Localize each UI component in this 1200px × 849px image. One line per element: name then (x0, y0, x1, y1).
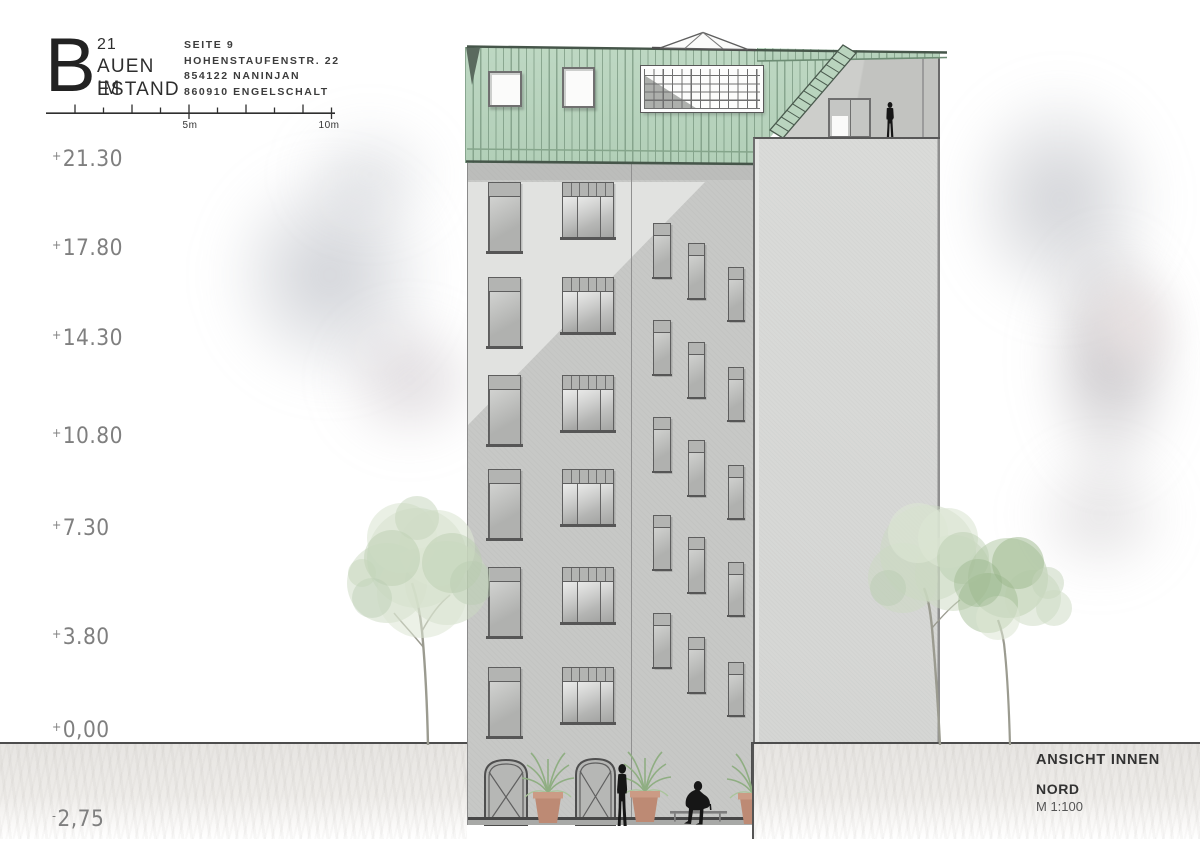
drawing-title: ANSICHT INNEN (1036, 752, 1160, 768)
entrance-door-right (574, 755, 617, 826)
facade-window (488, 182, 521, 252)
stairwell-window (728, 465, 744, 519)
roof-seam-line (467, 149, 757, 152)
tree-canopy (868, 503, 1072, 640)
stairwell-window (728, 562, 744, 616)
title-big-letter: B (45, 30, 96, 102)
roof-pyramid-skylight (652, 33, 756, 51)
tree-group-right (858, 468, 1073, 745)
elevation-label: +0,00 (52, 718, 110, 743)
stairwell-window (728, 267, 744, 321)
stairwell-window (653, 613, 671, 668)
elevation-label: +10.80 (52, 424, 123, 449)
facade-window (562, 182, 614, 238)
address-line: SEITE 9 (184, 38, 340, 54)
elevation-label: +3.80 (52, 625, 110, 650)
stairwell-window (688, 243, 705, 299)
facade-window (488, 667, 521, 737)
elevation-label: +14.30 (52, 326, 123, 351)
ground-left (0, 742, 467, 839)
elevation-drawing-canvas: B 21 AUEN IM ESTAND SEITE 9HOHENSTAUFENS… (0, 0, 1200, 849)
title-number: 21 (97, 36, 117, 54)
roof-exterior-stair (770, 45, 856, 138)
stairwell-window (653, 320, 671, 375)
facade-window (562, 667, 614, 723)
facade-window (488, 277, 521, 347)
tree-left (332, 463, 490, 745)
stairwell-window (688, 537, 705, 593)
scale-bar: 5m 10m (24, 98, 344, 140)
roof-eave-line (466, 162, 757, 165)
stairwell-window (688, 342, 705, 398)
roof-gable-sliver (466, 47, 480, 85)
person-silhouette-standing (612, 764, 632, 827)
elevation-label: +21.30 (52, 147, 123, 172)
facade-window (562, 469, 614, 525)
scale-label-10m: 10m (319, 120, 340, 131)
scale-label-5m: 5m (183, 120, 198, 131)
drawing-orientation: NORD (1036, 781, 1160, 797)
stairwell-window (653, 417, 671, 472)
stairwell-window (728, 662, 744, 716)
potted-plant (519, 745, 577, 825)
elevation-label: +7.30 (52, 516, 110, 541)
facade-window (562, 567, 614, 623)
facade-window (488, 469, 521, 539)
facade-window (488, 567, 521, 637)
stairwell-window (653, 223, 671, 278)
drawing-info: ANSICHT INNEN NORD M 1:100 (1036, 752, 1160, 814)
address-line: HOHENSTAUFENSTR. 22 (184, 54, 340, 70)
facade-window (562, 375, 614, 431)
elevation-label: +17.80 (52, 236, 123, 261)
facade-window (488, 375, 521, 445)
facade-window (562, 277, 614, 333)
main-facade (467, 163, 755, 825)
project-address: SEITE 9HOHENSTAUFENSTR. 22854122 NANINJA… (184, 38, 340, 100)
cloud (1055, 240, 1200, 410)
stairwell-window (653, 515, 671, 570)
tree-canopy (347, 496, 490, 638)
stairwell-window (688, 440, 705, 496)
person-silhouette-sitting (675, 779, 717, 826)
facade-divider-line (631, 163, 632, 825)
drawing-scale: M 1:100 (1036, 799, 1160, 814)
address-line: 854122 NANINJAN (184, 69, 340, 85)
stairwell-window (688, 637, 705, 693)
stairwell-window (728, 367, 744, 421)
